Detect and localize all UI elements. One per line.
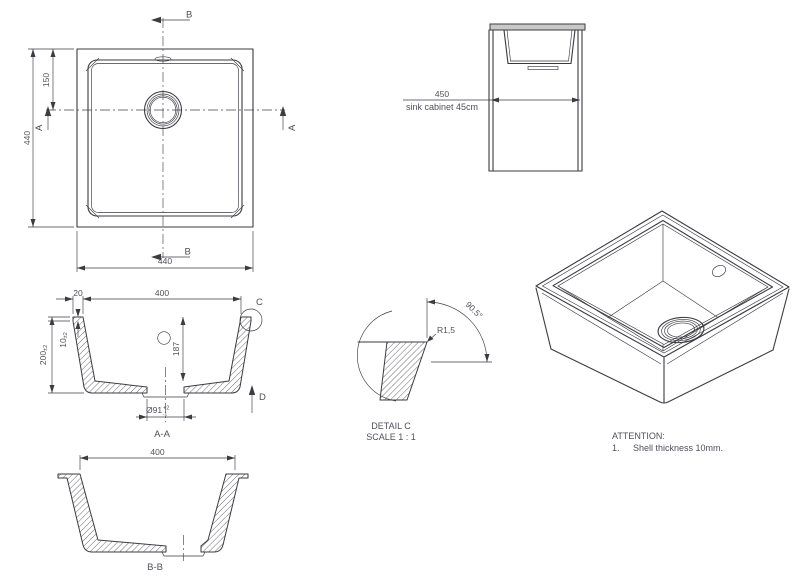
section-label-a-right: A xyxy=(287,124,298,131)
dim-drain-dia: Ø91+2-1 xyxy=(146,405,169,418)
extension-lines xyxy=(28,49,253,272)
cabinet-walls xyxy=(489,30,582,171)
section-aa-label: A-A xyxy=(154,429,171,440)
detail-c-title: DETAIL C xyxy=(371,421,411,431)
detail-c-view: 90.5° R1,5 DETAIL C SCALE 1 : 1 xyxy=(357,298,492,442)
section-label-b-bottom: B xyxy=(185,247,191,258)
notes-item-number: 1. xyxy=(612,443,620,453)
sink-rim-inner-edge xyxy=(88,60,242,216)
notes-block: ATTENTION: 1. Shell thickness 10mm. xyxy=(612,431,723,453)
dim-radius-r1-5: R1,5 xyxy=(437,325,455,335)
drain-stub xyxy=(528,67,558,70)
dim-depth-200: 200±2 xyxy=(38,345,49,365)
top-plan-view: 440 150 440 B B A A xyxy=(22,10,298,273)
dim-rim-20: 20 xyxy=(73,288,83,298)
dim-height-440: 440 xyxy=(22,131,32,145)
cabinet-side-view: 450 sink cabinet 45cm xyxy=(403,24,585,171)
section-label-a-left: A xyxy=(34,124,45,131)
section-bb-right-wall xyxy=(201,474,248,552)
notes-title: ATTENTION: xyxy=(612,431,665,441)
section-bb-label: B-B xyxy=(147,562,163,573)
drawing-sheet: 440 150 440 B B A A xyxy=(0,0,800,579)
isometric-view xyxy=(536,211,789,403)
detail-c-scale: SCALE 1 : 1 xyxy=(366,432,416,442)
dim-rim-thickness-10: 10±2 xyxy=(58,332,69,348)
view-label-d: D xyxy=(259,392,266,403)
dim-inner-depth-187: 187 xyxy=(171,342,181,356)
view-marker-d: D xyxy=(249,385,266,413)
iso-bowl-floor xyxy=(608,281,718,351)
dim-cabinet-450: 450 xyxy=(435,89,449,99)
dim-bb-width-400: 400 xyxy=(150,447,164,457)
section-label-b-top: B xyxy=(186,10,192,21)
dim-inner-width-400: 400 xyxy=(155,288,169,298)
section-marker-a-right: A xyxy=(280,106,298,131)
section-marker-b-top: B xyxy=(151,10,192,24)
detail-c-ref: C xyxy=(256,297,263,308)
section-bb-view: 400 B-B xyxy=(58,447,248,573)
section-bb-left-wall xyxy=(58,474,166,552)
rim-corner-chamfers xyxy=(86,58,244,218)
iso-rim-outer xyxy=(536,211,789,357)
section-aa-right-wall xyxy=(184,317,251,393)
iso-body-edges xyxy=(536,288,789,403)
iso-interior-edges xyxy=(558,224,768,351)
dim-drain-offset-150: 150 xyxy=(41,73,51,87)
detail-wall-section xyxy=(380,342,427,400)
notes-item-text: Shell thickness 10mm. xyxy=(633,443,723,453)
technical-drawing-canvas: 440 150 440 B B A A xyxy=(0,0,800,579)
section-aa-view: C 400 20 10±2 200±2 187 xyxy=(38,288,266,440)
sink-bowl-top-edge xyxy=(92,64,239,213)
iso-underrim-lines xyxy=(542,293,783,364)
section-aa-left-wall xyxy=(73,317,147,393)
overflow-hole-section xyxy=(158,332,171,345)
iso-overflow-hole xyxy=(710,263,727,279)
cabinet-caption: sink cabinet 45cm xyxy=(406,102,478,112)
section-bb-ext-lines xyxy=(80,455,235,470)
sink-in-cabinet xyxy=(504,30,575,70)
section-marker-a-left: A xyxy=(34,106,51,131)
countertop xyxy=(490,24,585,30)
sink-outer-edge xyxy=(77,49,253,227)
